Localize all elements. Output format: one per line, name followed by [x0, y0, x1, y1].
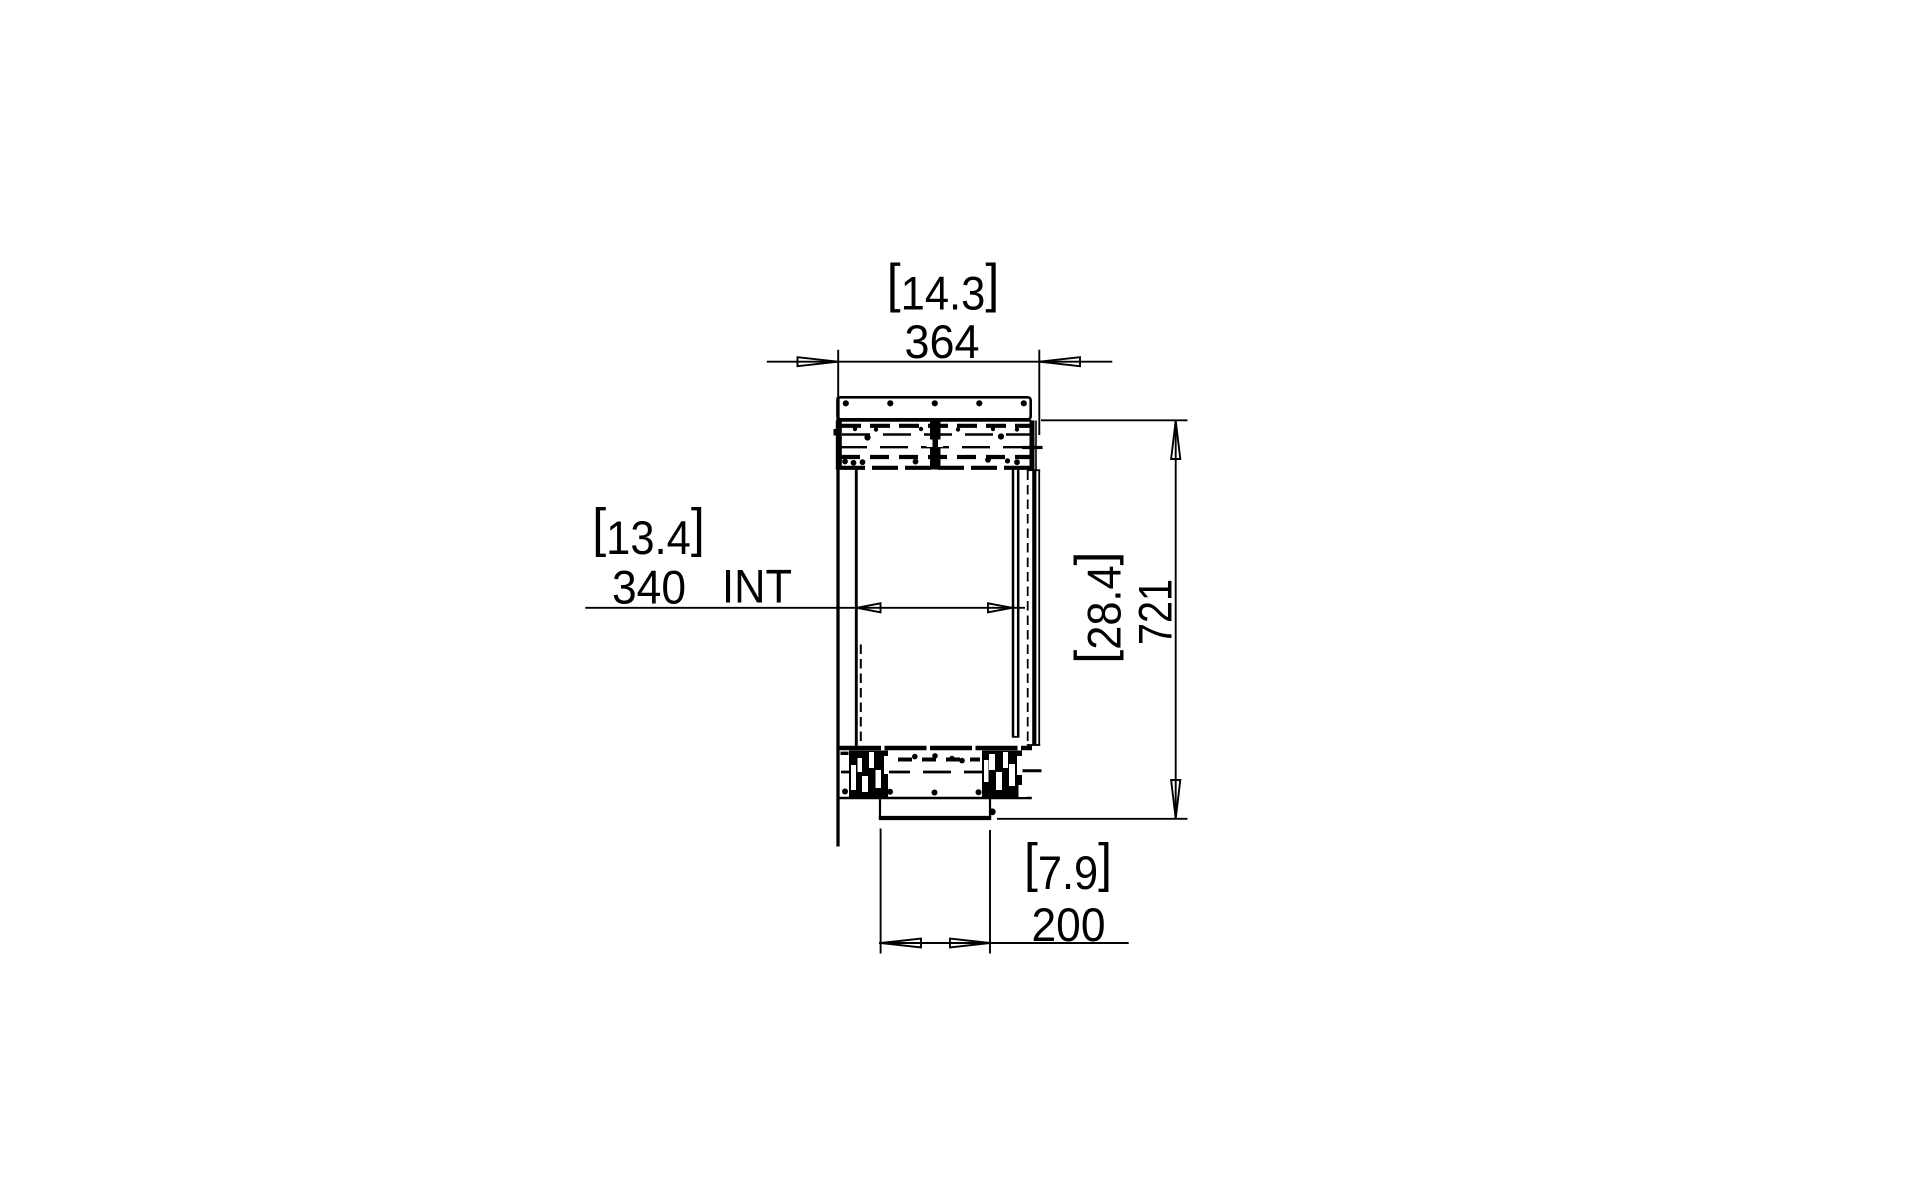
svg-text:INT: INT	[722, 560, 792, 613]
svg-text:364: 364	[905, 315, 980, 368]
svg-text:340: 340	[612, 560, 686, 613]
svg-text:721: 721	[1129, 579, 1182, 645]
